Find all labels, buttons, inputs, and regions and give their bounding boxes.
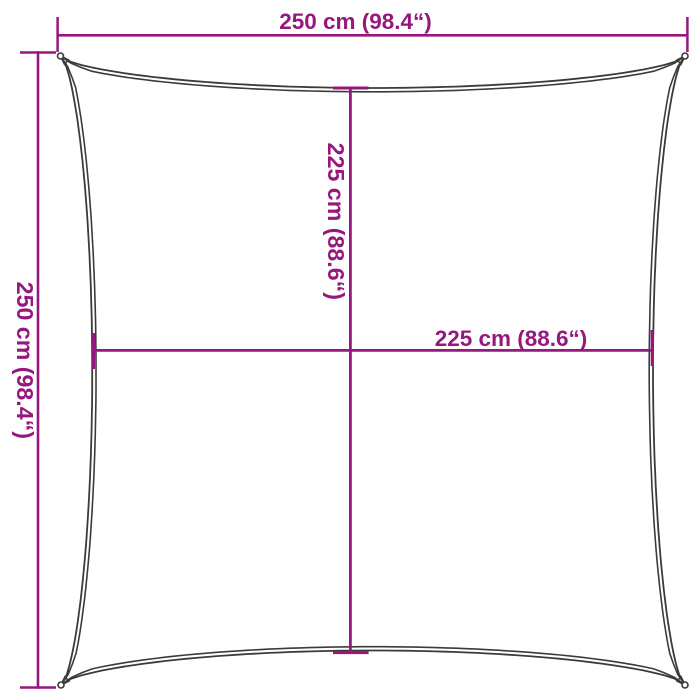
svg-text:250 cm (98.4“): 250 cm (98.4“) xyxy=(279,9,432,34)
svg-text:225 cm (88.6“): 225 cm (88.6“) xyxy=(435,326,588,351)
svg-text:250 cm (98.4“): 250 cm (98.4“) xyxy=(12,282,38,439)
svg-text:225 cm (88.6“): 225 cm (88.6“) xyxy=(323,143,349,300)
